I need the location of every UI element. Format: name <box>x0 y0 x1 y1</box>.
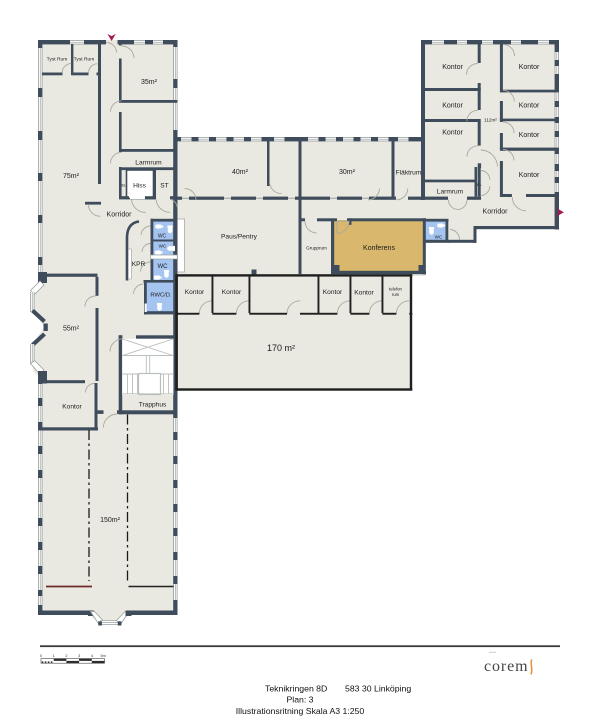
svg-text:Tyst Rum: Tyst Rum <box>47 57 68 63</box>
svg-text:Illustrationsritning Skala A3: Illustrationsritning Skala A3 1:250 <box>236 706 365 716</box>
svg-text:55m²: 55m² <box>63 326 80 333</box>
svg-text:Kontor: Kontor <box>222 289 242 296</box>
svg-text:Hiss: Hiss <box>133 183 147 190</box>
svg-text:Kontor: Kontor <box>62 404 82 411</box>
svg-text:5m: 5m <box>101 654 106 658</box>
svg-text:4: 4 <box>91 654 93 658</box>
svg-text:WC: WC <box>435 235 443 240</box>
svg-text:corem: corem <box>484 658 528 675</box>
svg-text:0: 0 <box>40 654 42 658</box>
svg-text:Kontor: Kontor <box>519 64 540 71</box>
svg-text:1: 1 <box>53 654 55 658</box>
svg-text:40m²: 40m² <box>232 169 249 176</box>
svg-text:EL: EL <box>477 182 483 187</box>
svg-text:Kontor: Kontor <box>442 64 463 71</box>
svg-text:Tyst Rum: Tyst Rum <box>74 57 95 63</box>
svg-text:75m²: 75m² <box>63 173 80 180</box>
svg-text:Paus/Pentry: Paus/Pentry <box>221 234 258 241</box>
svg-text:ST: ST <box>160 183 168 190</box>
svg-text:30m²: 30m² <box>339 169 356 176</box>
svg-text:Kontor: Kontor <box>185 289 205 296</box>
svg-text:35m²: 35m² <box>141 79 158 86</box>
svg-text:Kontor: Kontor <box>519 103 540 110</box>
svg-text:rum: rum <box>392 292 400 297</box>
svg-text:Trapphus: Trapphus <box>139 402 167 409</box>
svg-text:Teknikringen 8D: Teknikringen 8D <box>265 684 327 694</box>
svg-text:WC: WC <box>158 233 167 239</box>
svg-text:Konferens: Konferens <box>363 245 395 252</box>
svg-text:2: 2 <box>65 654 67 658</box>
svg-text:Kontor: Kontor <box>323 289 343 296</box>
svg-text:KPR: KPR <box>132 261 146 268</box>
svg-text:RWC/D.: RWC/D. <box>150 293 172 299</box>
svg-text:Larmrum: Larmrum <box>437 189 464 196</box>
svg-text:Fläktrum: Fläktrum <box>396 170 422 177</box>
svg-text:150m²: 150m² <box>100 517 121 524</box>
svg-text:Kontor: Kontor <box>442 130 463 137</box>
svg-text:WC: WC <box>159 244 167 249</box>
svg-text:3: 3 <box>78 654 80 658</box>
svg-text:Plan: 3: Plan: 3 <box>286 695 313 705</box>
svg-text:Korridor: Korridor <box>483 209 509 216</box>
svg-text:EL: EL <box>122 183 128 188</box>
svg-text:170 m²: 170 m² <box>267 343 295 353</box>
svg-text:Grupprum: Grupprum <box>306 246 327 251</box>
svg-text:telefon: telefon <box>389 287 403 292</box>
svg-text:WC: WC <box>158 264 169 270</box>
svg-text:Kontor: Kontor <box>519 172 540 179</box>
svg-text:Korridor: Korridor <box>107 211 133 218</box>
svg-text:Kontor: Kontor <box>519 132 540 139</box>
svg-text:583 30 Linköping: 583 30 Linköping <box>345 684 411 694</box>
svg-text:Larmrum: Larmrum <box>135 159 162 166</box>
svg-text:Kontor: Kontor <box>442 103 463 110</box>
svg-text:Kontor: Kontor <box>354 290 374 297</box>
svg-text:112m²: 112m² <box>484 118 497 123</box>
